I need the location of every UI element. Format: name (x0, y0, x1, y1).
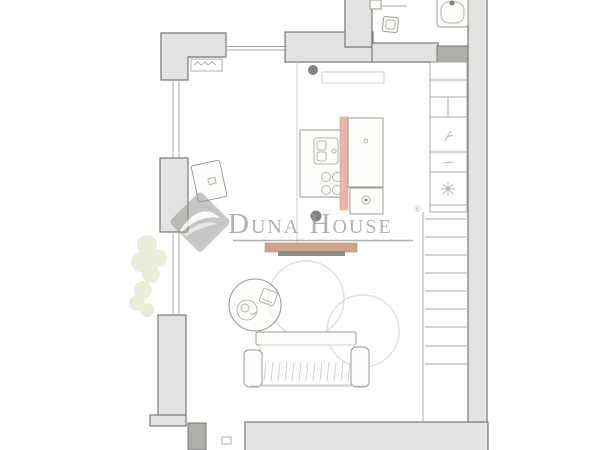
kitchen-accent-strip (340, 117, 348, 210)
wall-bath-bottom (372, 43, 438, 62)
sofa-armrest-right (351, 347, 369, 387)
column-dot-top (308, 65, 318, 75)
bathroom (370, 0, 468, 33)
sofa-seat (260, 345, 354, 385)
wall-left-pillar-foot (150, 415, 186, 426)
dining-table (229, 279, 281, 331)
watermark-registered-mark: ® (414, 204, 421, 214)
closet-dash-glyph (443, 162, 453, 163)
sofa-hatching (264, 362, 350, 381)
kitchen (300, 65, 384, 222)
closet-column (430, 62, 467, 212)
sofa-backrest (256, 332, 356, 345)
threshold-mark (222, 437, 231, 444)
wall-bottom-slab (245, 422, 488, 450)
staircase (423, 212, 467, 422)
wall-top-stem (345, 0, 372, 47)
radiator (191, 59, 222, 71)
bathroom-sink (382, 16, 398, 32)
wall-left-pillar-lower (158, 315, 186, 416)
living-area (229, 243, 399, 387)
bathtub (437, 0, 468, 27)
wall-dark-top-right (437, 46, 468, 62)
sofa (244, 332, 369, 387)
watermark-brand-text: Duna House (228, 208, 393, 240)
wall-top-left-block (161, 33, 226, 80)
greenery (129, 235, 167, 317)
wall-right-band (468, 0, 487, 450)
closet-washer-glyph (441, 182, 455, 196)
kitchen-island (348, 118, 383, 187)
shelf-bar (265, 243, 357, 252)
sofa-armrest-left (244, 350, 262, 387)
floor-plan-drawing: Duna House ® (0, 0, 600, 450)
window-lines (173, 47, 287, 316)
closet-plant-glyph (445, 131, 453, 141)
bathtub-faucet (450, 1, 455, 6)
floor-plan-image: Duna House ® (0, 0, 600, 450)
counter-top-faint (322, 72, 384, 83)
wall-dark-bottom-jamb (188, 423, 206, 450)
shelf-shadow-bar (278, 251, 345, 256)
toilet-cistern (370, 0, 381, 9)
